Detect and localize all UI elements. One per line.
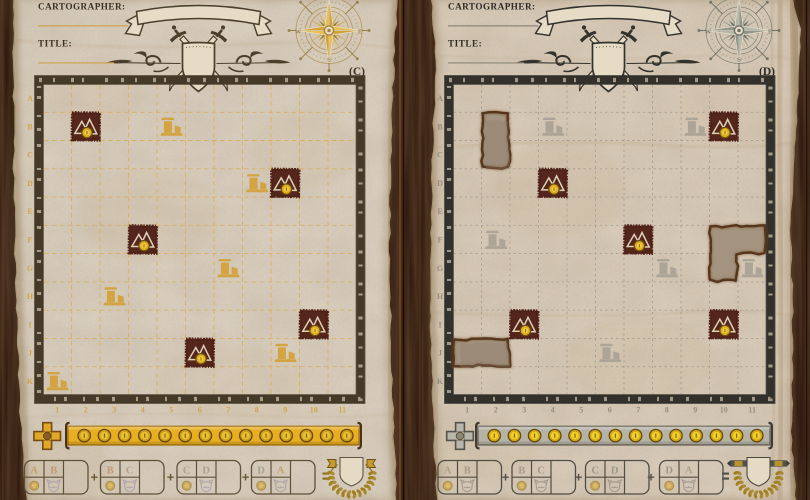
svg-text:C: C [27, 151, 33, 160]
svg-text:1: 1 [55, 406, 59, 415]
svg-text:W: W [295, 29, 302, 36]
svg-text:2: 2 [494, 406, 498, 415]
svg-text:K: K [437, 377, 444, 386]
svg-text:W: W [705, 29, 712, 36]
svg-text:C: C [183, 466, 191, 477]
svg-text:G: G [437, 264, 443, 273]
svg-text:F: F [438, 236, 443, 245]
svg-text:E: E [437, 207, 442, 216]
svg-text:5: 5 [169, 406, 173, 415]
svg-text:6: 6 [608, 406, 612, 415]
svg-text:H: H [27, 292, 34, 301]
svg-text:C: C [591, 466, 599, 477]
svg-text:10: 10 [310, 406, 318, 415]
svg-text:B: B [518, 466, 525, 477]
svg-text:S: S [327, 57, 331, 64]
svg-text:F: F [28, 236, 33, 245]
svg-text:3: 3 [522, 406, 526, 415]
svg-text:7: 7 [226, 406, 230, 415]
svg-text:J: J [438, 349, 442, 358]
svg-text:C: C [437, 151, 443, 160]
svg-text:B: B [107, 466, 114, 477]
svg-text:C: C [126, 466, 134, 477]
svg-text:5: 5 [579, 406, 583, 415]
svg-text:+: + [502, 470, 510, 485]
svg-text:A: A [277, 466, 285, 477]
svg-text:A: A [685, 466, 693, 477]
svg-text:4: 4 [551, 406, 555, 415]
svg-text:9: 9 [283, 406, 287, 415]
svg-text:A: A [30, 466, 38, 477]
svg-text:+: + [242, 470, 250, 485]
svg-text:CARTOGRAPHER:: CARTOGRAPHER: [38, 2, 126, 12]
svg-text:7: 7 [636, 406, 640, 415]
svg-text:+: + [91, 470, 99, 485]
svg-text:D: D [665, 466, 673, 477]
svg-text:A: A [437, 94, 443, 103]
svg-text:H: H [437, 292, 444, 301]
svg-text:4: 4 [141, 406, 145, 415]
svg-text:E: E [27, 207, 32, 216]
svg-text:TITLE:: TITLE: [448, 39, 482, 49]
svg-text:D: D [611, 466, 619, 477]
svg-text:3: 3 [112, 406, 116, 415]
svg-text:G: G [27, 264, 33, 273]
svg-text:I: I [438, 320, 441, 329]
svg-text:8: 8 [665, 406, 669, 415]
svg-text:B: B [437, 122, 443, 131]
svg-text:K: K [27, 377, 34, 386]
svg-text:D: D [202, 466, 210, 477]
svg-text:E: E [358, 29, 362, 36]
svg-text:A: A [27, 94, 33, 103]
svg-text:B: B [464, 466, 471, 477]
svg-text:D: D [257, 466, 265, 477]
svg-text:+: + [647, 470, 655, 485]
svg-text:I: I [28, 320, 31, 329]
svg-text:+: + [167, 470, 175, 485]
svg-text:2: 2 [84, 406, 88, 415]
svg-text:9: 9 [693, 406, 697, 415]
svg-text:S: S [737, 57, 741, 64]
svg-text:10: 10 [720, 406, 728, 415]
svg-text:D: D [27, 179, 33, 188]
svg-text:+: + [575, 470, 583, 485]
svg-text:6: 6 [198, 406, 202, 415]
svg-text:8: 8 [255, 406, 259, 415]
svg-text:J: J [28, 349, 32, 358]
svg-text:CARTOGRAPHER:: CARTOGRAPHER: [448, 2, 536, 12]
svg-text:B: B [50, 466, 57, 477]
svg-text:1: 1 [465, 406, 469, 415]
svg-text:TITLE:: TITLE: [38, 39, 72, 49]
svg-text:E: E [768, 29, 772, 36]
svg-text:D: D [437, 179, 443, 188]
svg-text:11: 11 [748, 406, 756, 415]
svg-text:B: B [27, 122, 33, 131]
svg-text:A: A [444, 466, 452, 477]
svg-text:C: C [537, 466, 545, 477]
svg-text:11: 11 [338, 406, 346, 415]
